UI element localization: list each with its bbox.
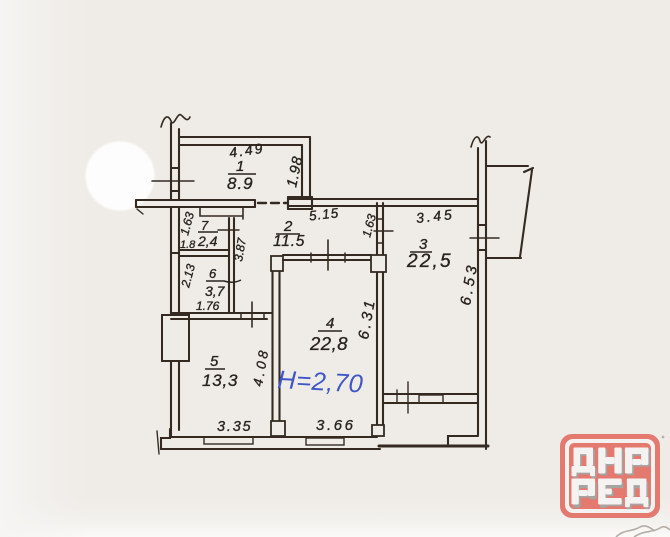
svg-text:8.9: 8.9 <box>227 174 254 193</box>
svg-text:5.15: 5.15 <box>308 205 340 223</box>
svg-text:1.8: 1.8 <box>180 239 196 251</box>
svg-text:22,8: 22,8 <box>309 333 348 354</box>
svg-text:7: 7 <box>201 218 209 233</box>
svg-text:2,4: 2,4 <box>197 233 218 249</box>
svg-text:3.66: 3.66 <box>316 417 356 434</box>
svg-text:11.5: 11.5 <box>273 233 305 250</box>
svg-text:3.35: 3.35 <box>217 419 252 435</box>
svg-text:1: 1 <box>236 158 244 175</box>
svg-text:1.76: 1.76 <box>196 299 220 313</box>
svg-text:6: 6 <box>209 266 217 281</box>
svg-text:Н=2,70: Н=2,70 <box>277 366 364 398</box>
svg-text:22,5: 22,5 <box>406 251 453 272</box>
svg-text:13,3: 13,3 <box>202 371 238 390</box>
svg-text:5: 5 <box>210 353 219 370</box>
svg-text:3,7: 3,7 <box>205 283 226 299</box>
svg-text:4: 4 <box>326 315 334 332</box>
